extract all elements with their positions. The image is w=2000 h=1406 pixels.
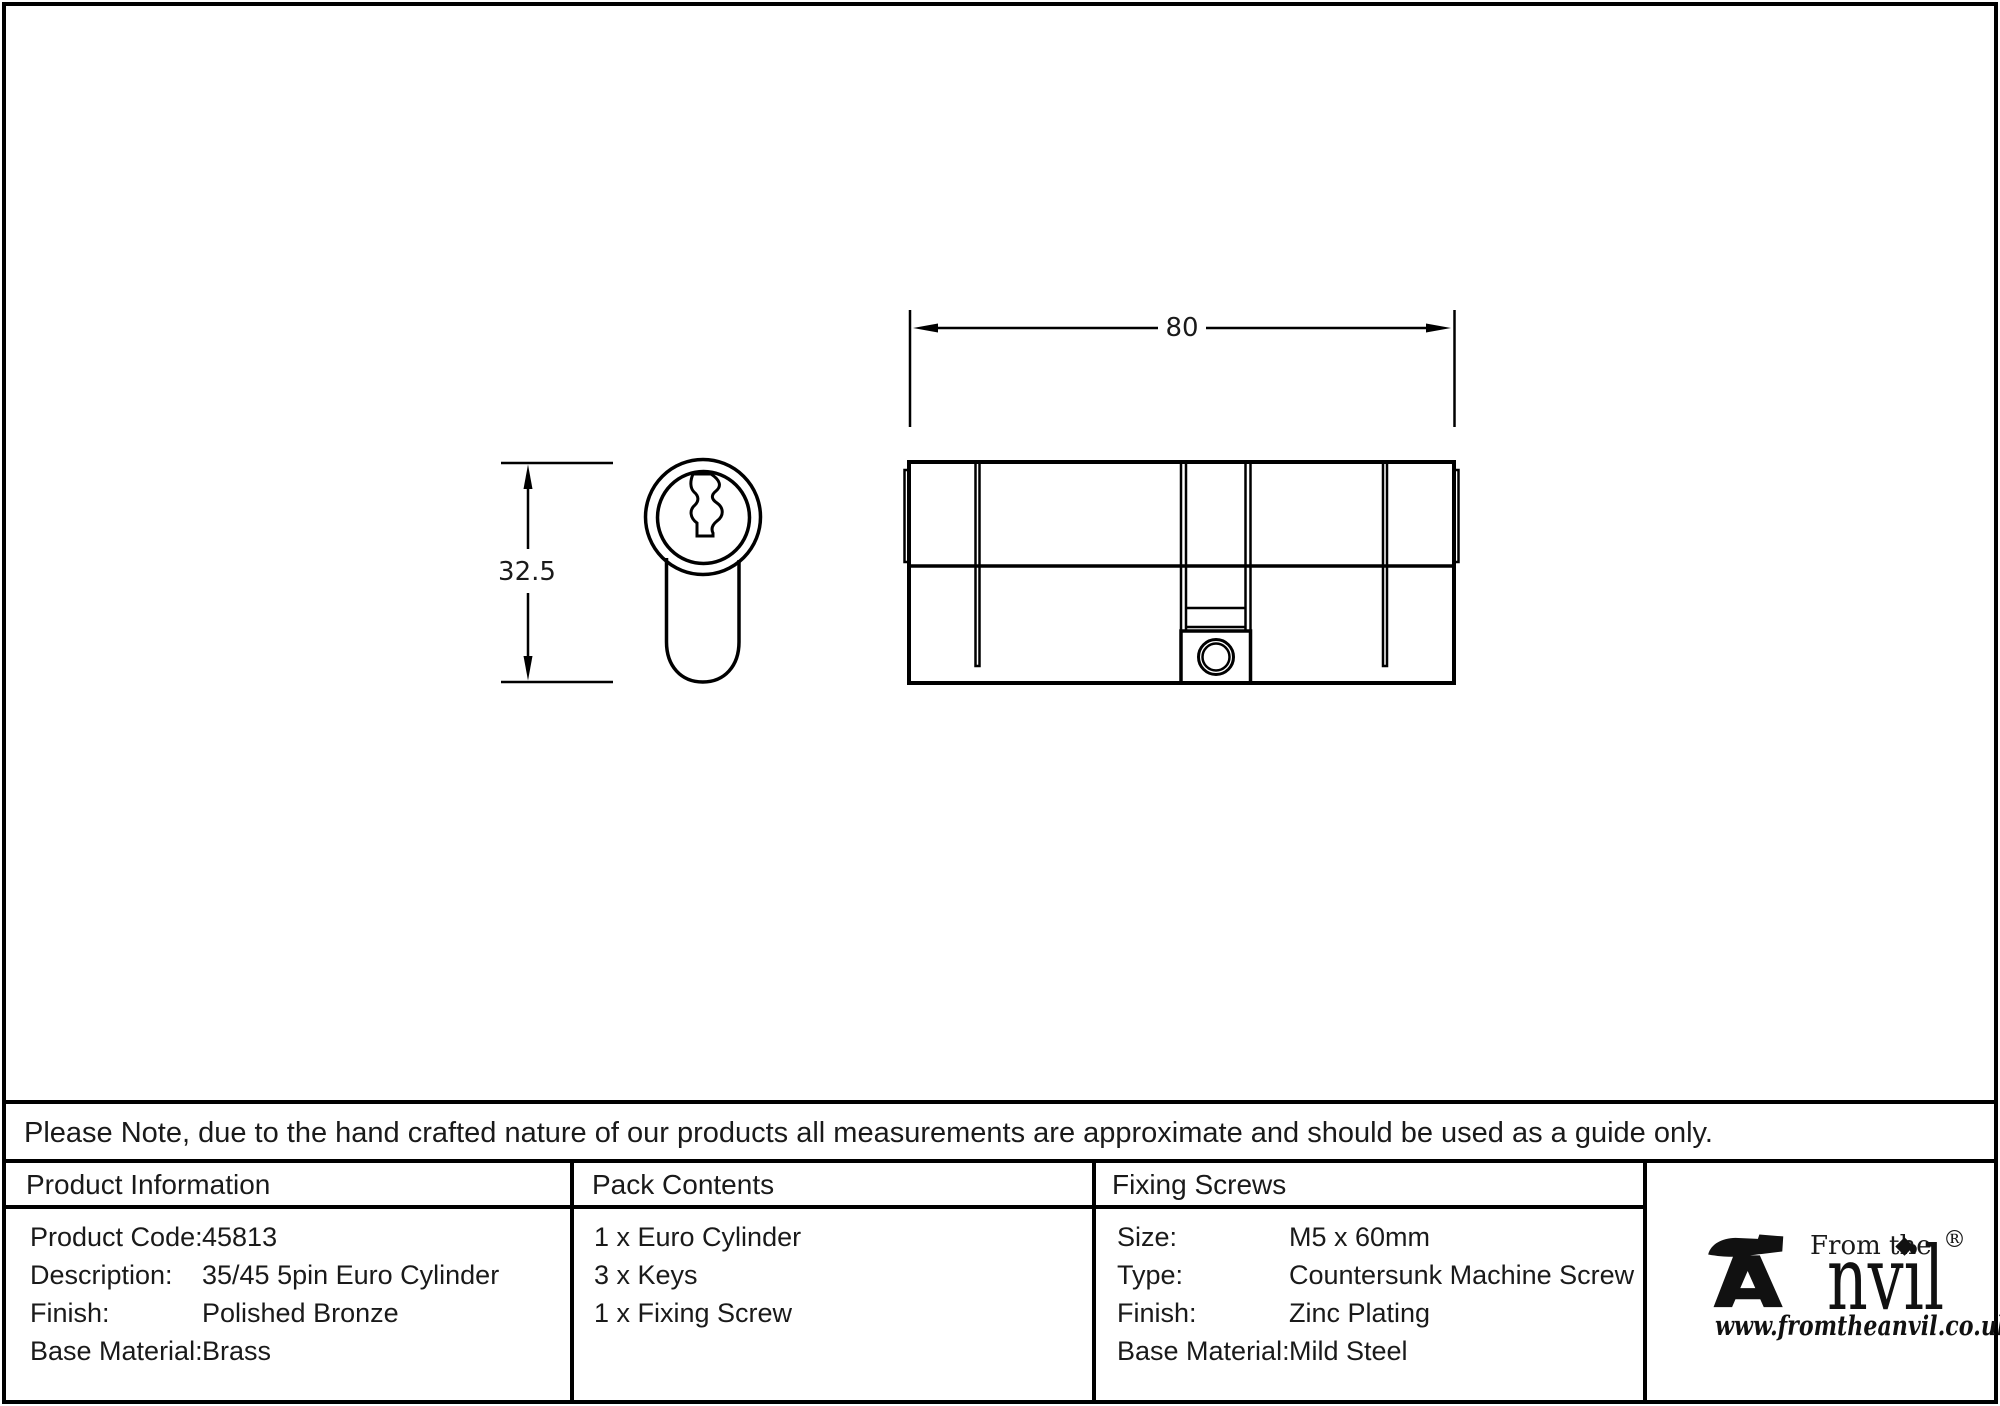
field-label: Base Material: (30, 1332, 202, 1370)
field-label: Base Material: (1117, 1332, 1289, 1370)
field-label: Product Code: (30, 1218, 202, 1256)
table-row: Base Material:Mild Steel (1117, 1332, 1408, 1370)
technical-drawing: 80 32.5 (0, 0, 2000, 1100)
table-row: Size:M5 x 60mm (1117, 1218, 1430, 1256)
field-value: M5 x 60mm (1289, 1222, 1430, 1252)
cylinder-outer-circle (646, 460, 761, 575)
arrow-left-icon (913, 324, 938, 333)
header-bottom-rule (6, 1205, 1647, 1209)
table-divider-1 (570, 1159, 574, 1402)
product-information-header: Product Information (26, 1166, 270, 1204)
arrow-down-icon (524, 656, 533, 681)
table-top-rule (6, 1159, 1994, 1163)
list-item: 1 x Euro Cylinder (594, 1218, 801, 1256)
fixing-screws-header: Fixing Screws (1112, 1166, 1286, 1204)
cam-circle-inner (1203, 644, 1230, 671)
measurement-note: Please Note, due to the hand crafted nat… (24, 1114, 1713, 1152)
right-end-cap (1454, 470, 1459, 562)
cylinder-side-view (905, 462, 1459, 683)
anvil-icon (1705, 1233, 1803, 1311)
field-label: Description: (30, 1256, 202, 1294)
list-item: 3 x Keys (594, 1256, 698, 1294)
field-value: Polished Bronze (202, 1298, 399, 1328)
cylinder-inner-circle (658, 472, 750, 564)
field-value: Zinc Plating (1289, 1298, 1430, 1328)
logo-url: www.fromtheanvil.co.uk (1715, 1312, 2000, 1342)
table-row: Finish:Polished Bronze (30, 1294, 399, 1332)
field-value: Mild Steel (1289, 1336, 1408, 1366)
table-row: Product Code:45813 (30, 1218, 277, 1256)
list-item: 1 x Fixing Screw (594, 1294, 792, 1332)
dimension-lines (501, 310, 1455, 682)
registered-mark: ® (1943, 1229, 1966, 1252)
table-row: Finish:Zinc Plating (1117, 1294, 1430, 1332)
table-divider-2 (1092, 1159, 1096, 1402)
cylinder-front-view (646, 460, 761, 683)
height-dimension-value: 32.5 (498, 557, 556, 587)
brand-logo: From the nvil ® www.fromtheanvil.co.uk (1647, 1209, 1997, 1398)
note-row-top-rule (6, 1100, 1994, 1104)
cylinder-stem (667, 558, 740, 682)
dimension-arrowheads (524, 324, 1452, 681)
field-label: Finish: (30, 1294, 202, 1332)
left-end-cap (905, 470, 910, 562)
pack-contents-header: Pack Contents (592, 1166, 774, 1204)
arrow-up-icon (524, 465, 533, 490)
field-value: 35/45 5pin Euro Cylinder (202, 1260, 499, 1290)
width-dimension-value: 80 (1165, 313, 1198, 343)
table-row: Description:35/45 5pin Euro Cylinder (30, 1256, 499, 1294)
field-value: Brass (202, 1336, 271, 1366)
field-label: Size: (1117, 1218, 1289, 1256)
spec-sheet-page: { "colors": { "ink": "#000000", "backgro… (0, 0, 2000, 1406)
table-row: Base Material:Brass (30, 1332, 271, 1370)
table-row: Type:Countersunk Machine Screw (1117, 1256, 1634, 1294)
center-section-lines (1181, 462, 1251, 631)
field-label: Type: (1117, 1256, 1289, 1294)
field-label: Finish: (1117, 1294, 1289, 1332)
keyhole-profile (691, 474, 722, 536)
field-value: Countersunk Machine Screw (1289, 1260, 1634, 1290)
field-value: 45813 (202, 1222, 277, 1252)
logo-brand-text: nvil (1827, 1235, 1944, 1323)
arrow-right-icon (1426, 324, 1451, 333)
